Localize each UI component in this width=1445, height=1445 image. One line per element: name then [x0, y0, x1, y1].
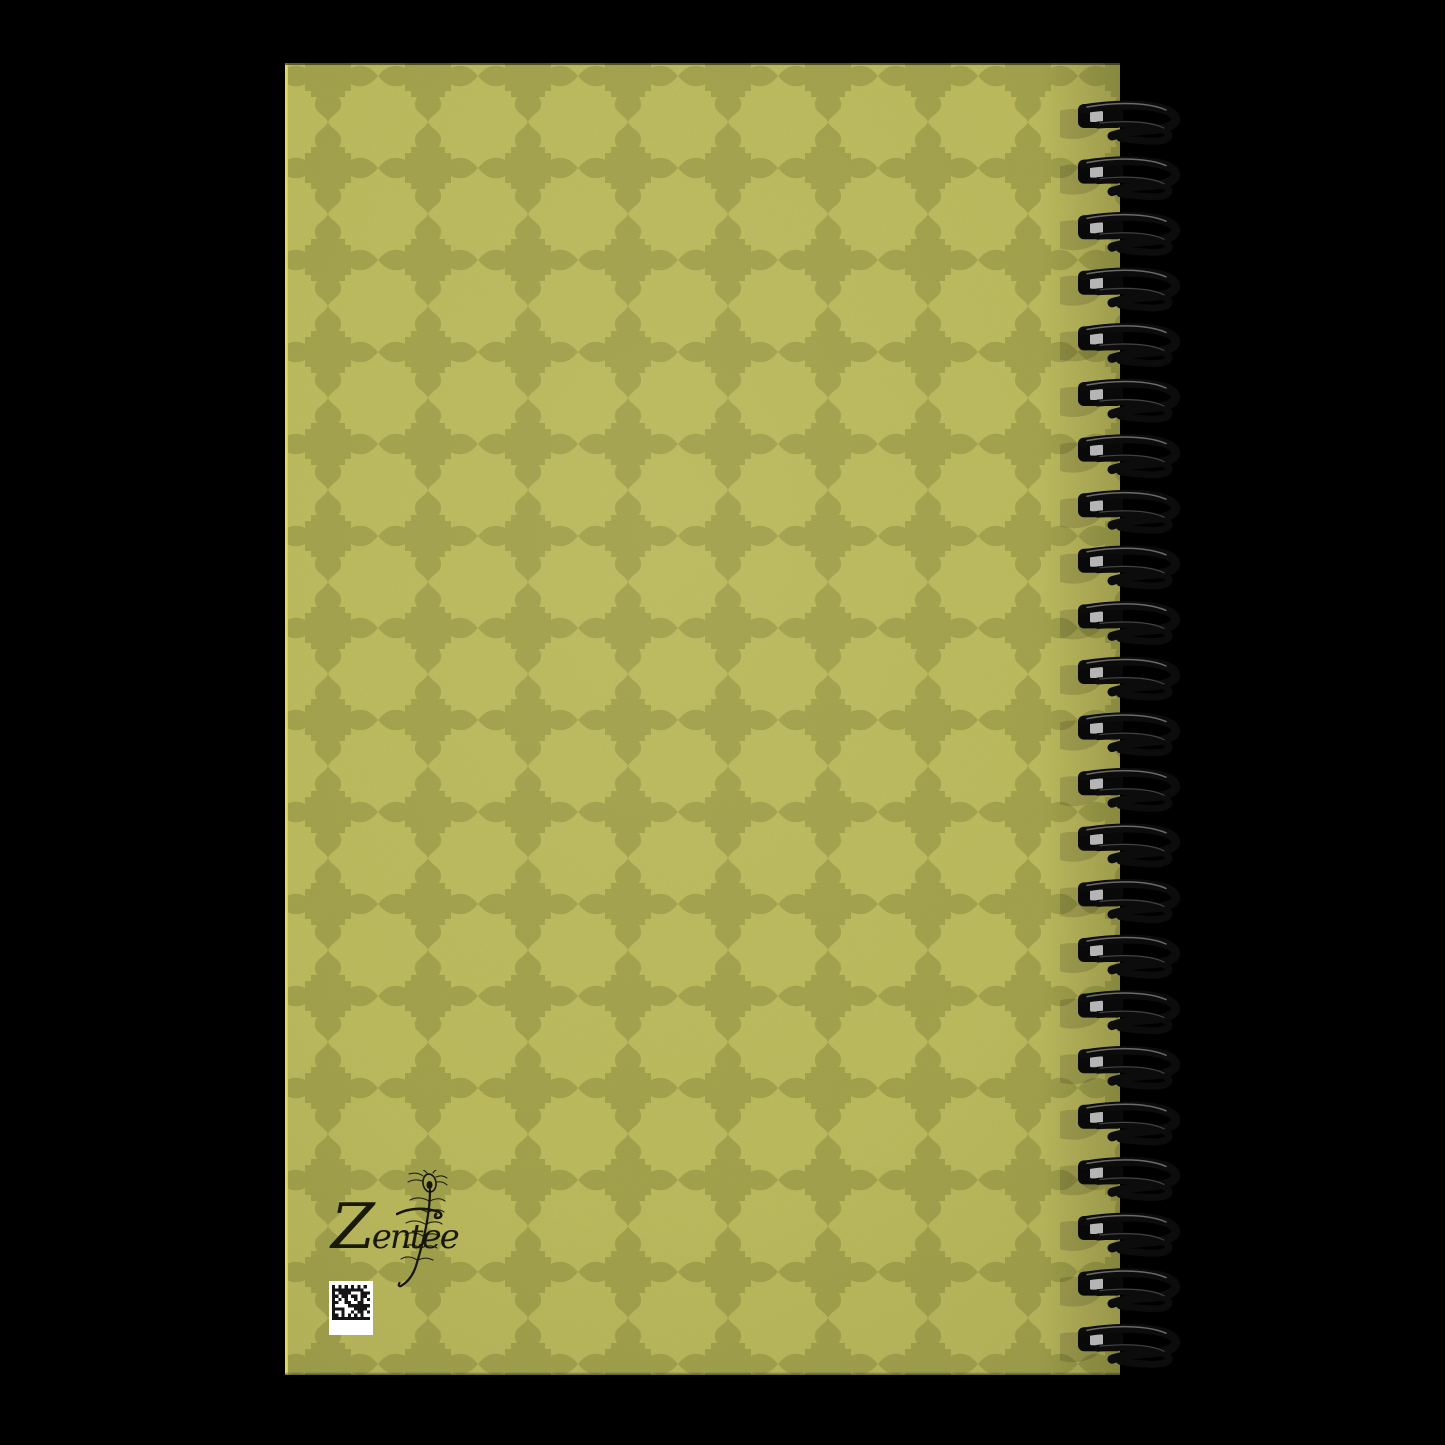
qr-modules — [332, 1285, 370, 1320]
binding-loop — [1060, 159, 1176, 197]
binding-loop — [1060, 826, 1176, 864]
binding-loop — [1060, 1104, 1176, 1142]
binding-loop — [1060, 715, 1176, 753]
binding-loop — [1060, 1215, 1176, 1253]
binding-loop — [1060, 493, 1176, 531]
binding-loop — [1060, 937, 1176, 975]
binding-loop — [1060, 771, 1176, 809]
binding-loop — [1060, 993, 1176, 1031]
qr-code — [332, 1285, 370, 1320]
binding-loop — [1060, 548, 1176, 586]
binding-loop — [1060, 1049, 1176, 1087]
peacock-feather-icon — [396, 1170, 448, 1292]
binding-loop — [1060, 1160, 1176, 1198]
qr-label — [329, 1281, 373, 1335]
cover-bottom-edge-shadow — [285, 1372, 1120, 1375]
binding-loop — [1060, 103, 1176, 141]
binding-loop — [1060, 882, 1176, 920]
binding-loop — [1060, 604, 1176, 642]
binding-loop — [1060, 1271, 1176, 1309]
cover-top-edge-shadow — [285, 63, 1120, 65]
binding-loop — [1060, 659, 1176, 697]
binding-loop — [1060, 381, 1176, 419]
spiral-binding — [1060, 63, 1200, 1375]
binding-loop — [1060, 270, 1176, 308]
binding-loop — [1060, 215, 1176, 253]
binding-loop — [1060, 437, 1176, 475]
cover-left-edge-highlight — [285, 63, 288, 1375]
binding-loop — [1060, 1327, 1176, 1365]
binding-loop — [1060, 326, 1176, 364]
product-photo: Zentee — [0, 0, 1445, 1445]
